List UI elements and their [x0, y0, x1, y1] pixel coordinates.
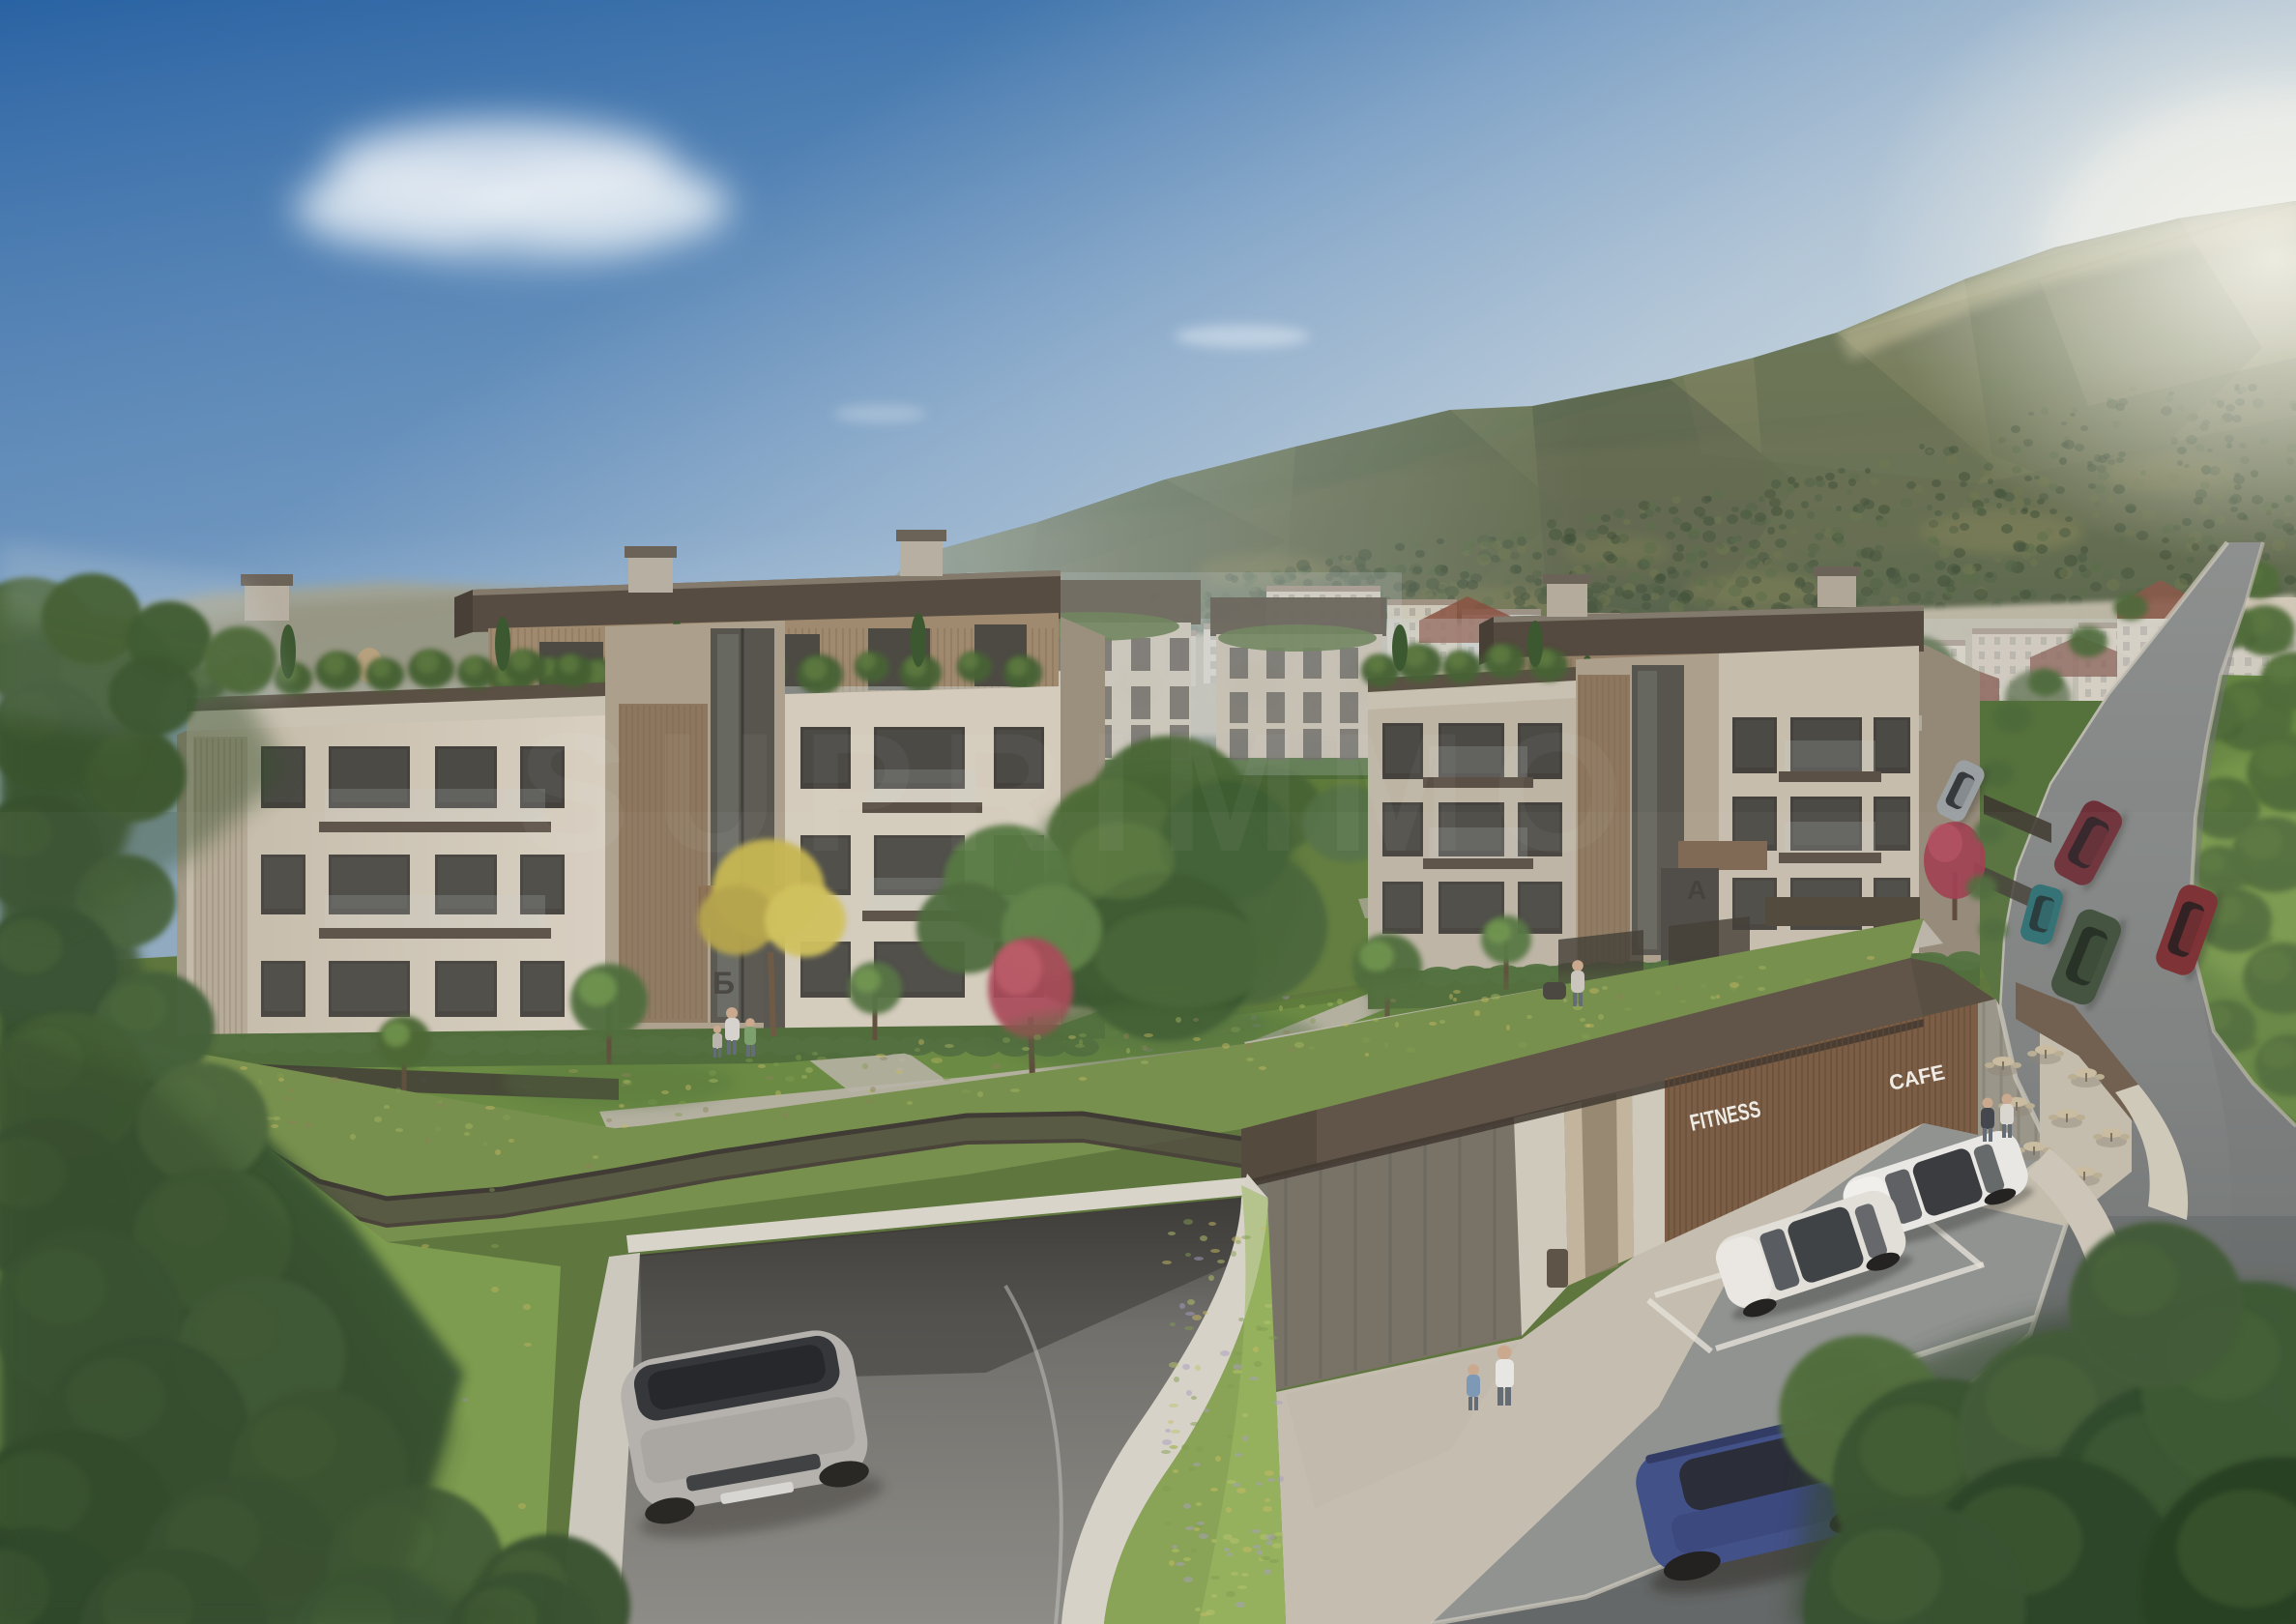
svg-text:SUPRIMMO: SUPRIMMO: [517, 699, 1649, 887]
